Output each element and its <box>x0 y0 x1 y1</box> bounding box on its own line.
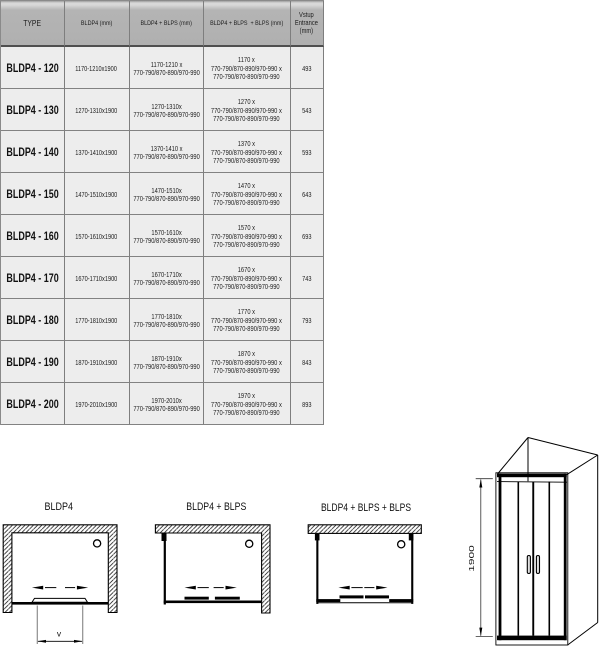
svg-text:v: v <box>57 629 62 639</box>
svg-text:BLDP4 + BLPS: BLDP4 + BLPS <box>186 501 246 513</box>
svg-text:1900: 1900 <box>467 545 476 572</box>
svg-text:BLDP4 + BLPS + BLPS: BLDP4 + BLPS + BLPS <box>321 502 411 514</box>
svg-text:BLDP4: BLDP4 <box>45 501 74 513</box>
